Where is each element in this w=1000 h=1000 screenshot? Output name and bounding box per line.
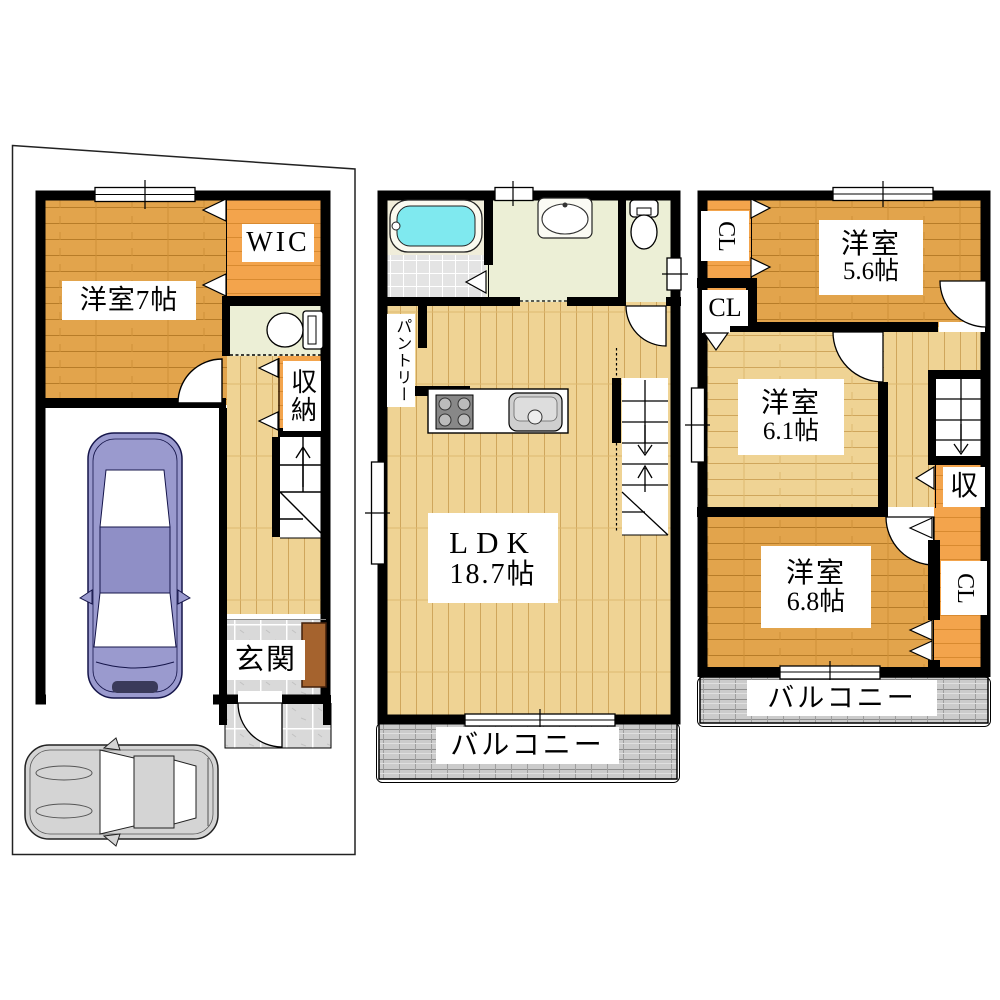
floor1-plan xyxy=(25,180,331,846)
floorplan-drawing xyxy=(0,0,1000,1000)
car-gray xyxy=(25,738,218,846)
kitchen-counter xyxy=(428,389,568,433)
storage3-label: 収 xyxy=(943,467,985,507)
bath-floor xyxy=(382,255,486,302)
room68-label: 洋室 6.8帖 xyxy=(761,546,871,628)
closet-mid-label: CL xyxy=(702,290,748,326)
balcony2-label: バルコニー xyxy=(436,727,619,764)
room7-label: 洋室7帖 xyxy=(62,281,196,320)
sink-icon xyxy=(538,198,592,238)
floor2-plan xyxy=(365,181,688,783)
wic-label: WIC xyxy=(242,224,314,262)
room56-label: 洋室 5.6帖 xyxy=(819,220,923,295)
closet-top-label: CL xyxy=(701,211,749,261)
room61-label: 洋室 6.1帖 xyxy=(738,379,844,455)
bathtub-icon xyxy=(390,200,482,252)
closet-right-label: CL xyxy=(941,561,987,615)
car-blue xyxy=(80,433,190,698)
balcony3-label: バルコニー xyxy=(747,680,937,716)
toilet-icon xyxy=(267,311,323,349)
entrance-label: 玄関 xyxy=(227,640,305,680)
ldk-size: 18.7帖 xyxy=(449,560,536,589)
ldk-label: LDK 18.7帖 xyxy=(428,513,558,603)
hall3-floor xyxy=(884,327,986,377)
floorplan-page: 洋室7帖 WIC 収納 玄関 パントリー LDK 18.7帖 バルコニー CL … xyxy=(0,0,1000,1000)
toilet-icon xyxy=(630,200,658,249)
ldk-name: LDK xyxy=(449,527,537,559)
storage1-label: 収納 xyxy=(283,361,321,431)
pantry-label: パントリー xyxy=(387,314,415,407)
shoe-cabinet xyxy=(302,623,326,687)
